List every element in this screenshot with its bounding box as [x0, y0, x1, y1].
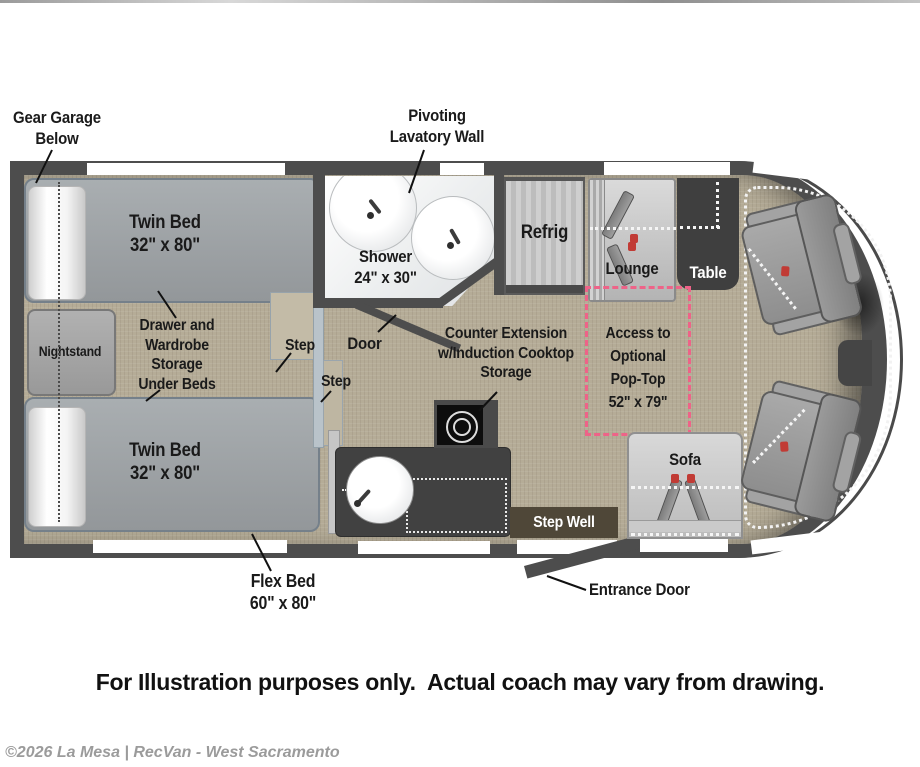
twin-bed-lower-label: Twin Bed 32" x 80" [103, 439, 226, 485]
watermark-text: ©2026 La Mesa | RecVan - West Sacramento [5, 744, 340, 762]
window [640, 539, 728, 552]
counter-dotted-outline [406, 478, 507, 533]
lounge-pivot-dotted-line [590, 227, 676, 230]
nightstand-label: Nightstand [26, 343, 114, 360]
sofa-dotted-line [631, 486, 739, 489]
seatbelt-buckle [781, 266, 790, 277]
table-label: Table [681, 263, 736, 284]
window [604, 162, 730, 175]
pillow-upper [28, 186, 86, 300]
lounge-armrest [590, 180, 605, 300]
flex-bed-label: Flex Bed 60" x 80" [235, 571, 332, 615]
seatbelt-buckle [628, 242, 636, 251]
gear-garage-divider-line [58, 182, 60, 522]
induction-cooktop [437, 405, 483, 445]
shower-wall-bottom [313, 298, 443, 308]
table-pivot-dotted-line [716, 182, 719, 228]
step-well-label: Step Well [516, 513, 611, 533]
sofa-label: Sofa [645, 450, 724, 471]
pop-top-label: Access to Optional Pop-Top 52" x 79" [590, 322, 685, 414]
under-bed-storage-label: Drawer and Wardrobe Storage Under Beds [118, 316, 236, 394]
door-label: Door [340, 334, 388, 355]
seatbelt-buckle [780, 441, 789, 452]
window [93, 540, 287, 553]
shower-label: Shower 24" x 30" [335, 247, 436, 288]
cooktop-ring-icon [453, 418, 471, 436]
window [358, 541, 490, 554]
pillow-lower [28, 407, 86, 527]
table-pivot-dotted-line [680, 226, 720, 229]
shower-wall-left [313, 175, 325, 308]
window [440, 163, 484, 175]
window [87, 163, 285, 175]
refrigerator-base-strip [506, 285, 583, 293]
step-upper-label: Step [280, 336, 320, 356]
entrance-door-label: Entrance Door [589, 580, 703, 601]
seatbelt-buckle [687, 474, 695, 483]
top-divider-bar [0, 0, 920, 3]
lounge-label: Lounge [597, 259, 667, 280]
refrig-label: Refrig [509, 221, 580, 244]
induction-cooktop-pedestal [434, 400, 498, 448]
seatbelt-buckle [671, 474, 679, 483]
kitchen-counter [335, 447, 511, 537]
faucet-knob-icon [367, 212, 374, 219]
faucet-knob-icon [354, 500, 361, 507]
twin-bed-upper-label: Twin Bed 32" x 80" [103, 211, 226, 257]
sofa-dotted-line [631, 533, 739, 536]
step-lower-label: Step [316, 372, 356, 392]
counter-extension-label: Counter Extension w/Induction Cooktop St… [437, 324, 574, 383]
floorplan-page: Nightstand Refrig Lounge Table [0, 0, 920, 767]
pivoting-lavatory-label: Pivoting Lavatory Wall [362, 106, 512, 147]
disclaimer-text: For Illustration purposes only. Actual c… [0, 669, 920, 696]
faucet-knob-icon [447, 242, 454, 249]
lounge-seat [588, 178, 676, 302]
gear-garage-label: Gear Garage Below [9, 108, 106, 149]
counter-sink [346, 456, 414, 524]
sofa [627, 432, 743, 539]
seatbelt [601, 190, 635, 240]
shower-wall-right [494, 175, 504, 295]
sofa-front-band [629, 520, 741, 532]
